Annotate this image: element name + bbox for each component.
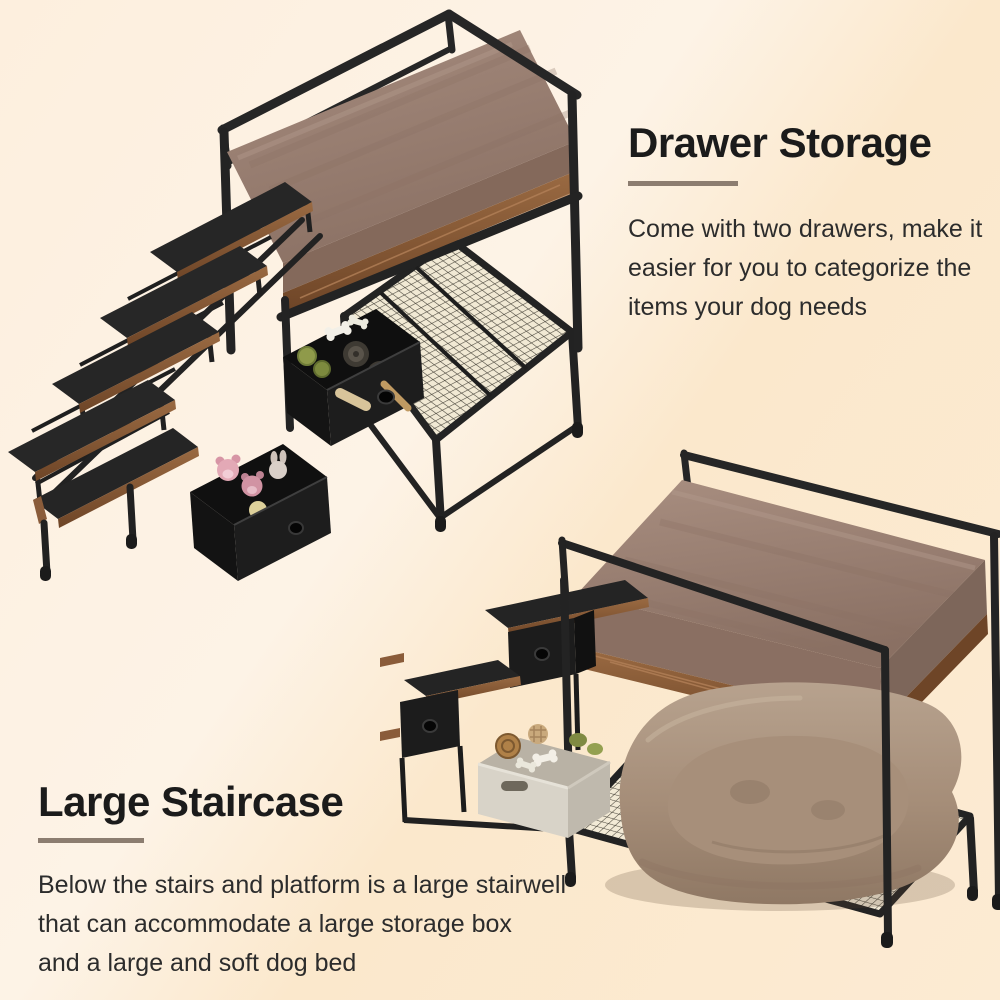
- body-line: Come with two drawers, make it: [628, 210, 982, 249]
- right-post: [572, 95, 578, 348]
- large-staircase-body: Below the stairs and platform is a large…: [38, 866, 566, 983]
- toy-capsule: [569, 733, 587, 747]
- product-infographic: Drawer Storage Come with two drawers, ma…: [0, 0, 1000, 1000]
- open-drawer-dog-toys: [283, 309, 424, 446]
- body-line: items your dog needs: [628, 288, 982, 327]
- large-staircase-heading: Large Staircase: [38, 781, 566, 823]
- foot: [967, 886, 978, 901]
- drawer-storage-heading: Drawer Storage: [628, 122, 982, 164]
- drawer-storage-divider: [628, 181, 738, 186]
- foot: [881, 932, 893, 948]
- grommet-handle: [378, 391, 394, 404]
- waffle-ball: [528, 724, 548, 744]
- grommet-handle: [535, 648, 549, 660]
- body-line: that can accommodate a large storage box: [38, 905, 566, 944]
- body-line: Below the stairs and platform is a large…: [38, 866, 566, 905]
- drawer-storage-body: Come with two drawers, make it easier fo…: [628, 210, 982, 327]
- grommet-handle: [289, 522, 303, 534]
- foot: [572, 422, 583, 438]
- toy-capsule: [587, 743, 603, 755]
- large-staircase-divider: [38, 838, 144, 843]
- foot: [992, 894, 1000, 910]
- rope-toy: [496, 734, 520, 758]
- dog-bed: [605, 682, 961, 911]
- right-post: [994, 536, 999, 900]
- open-drawer-plush-toys: [190, 444, 331, 581]
- foot: [565, 872, 576, 887]
- section-large-staircase: Large Staircase Below the stairs and pla…: [38, 781, 566, 983]
- front-right-post: [885, 650, 888, 936]
- grommet-handle: [423, 720, 437, 732]
- body-line: easier for you to categorize the: [628, 249, 982, 288]
- section-drawer-storage: Drawer Storage Come with two drawers, ma…: [628, 122, 982, 327]
- body-line: and a large and soft dog bed: [38, 944, 566, 983]
